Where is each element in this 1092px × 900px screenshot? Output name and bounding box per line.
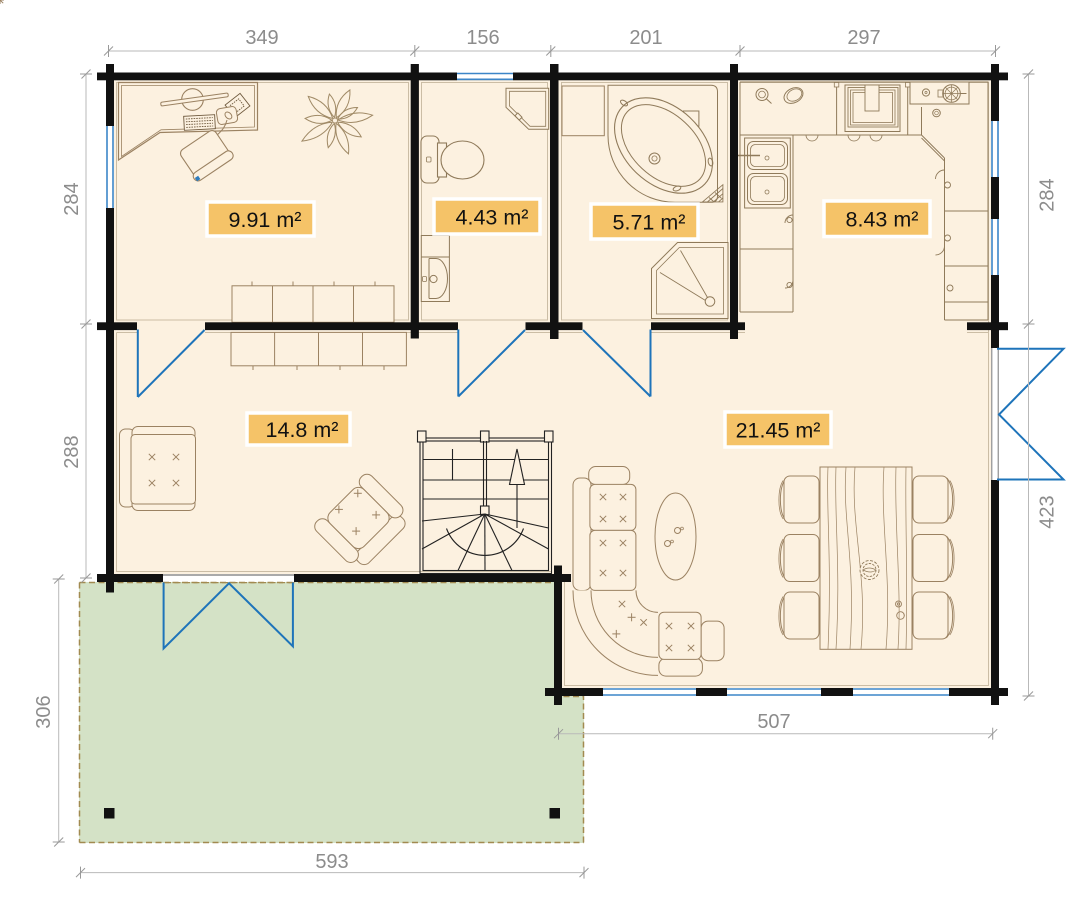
svg-text:201: 201 <box>629 27 662 49</box>
svg-text:14.8 m²: 14.8 m² <box>266 418 339 442</box>
svg-text:284: 284 <box>61 182 83 215</box>
svg-text:349: 349 <box>245 27 278 49</box>
svg-text:9.91 m²: 9.91 m² <box>229 208 302 232</box>
svg-text:5.71 m²: 5.71 m² <box>613 211 686 235</box>
svg-text:156: 156 <box>466 27 499 49</box>
svg-text:593: 593 <box>315 851 348 873</box>
svg-text:284: 284 <box>1037 178 1059 211</box>
svg-text:306: 306 <box>33 695 55 728</box>
svg-text:8.43 m²: 8.43 m² <box>846 208 919 232</box>
svg-text:21.45 m²: 21.45 m² <box>736 419 821 443</box>
svg-text:507: 507 <box>757 711 790 733</box>
svg-text:288: 288 <box>61 435 83 468</box>
svg-text:4.43 m²: 4.43 m² <box>456 206 529 230</box>
svg-text:423: 423 <box>1037 495 1059 528</box>
svg-text:297: 297 <box>847 27 880 49</box>
